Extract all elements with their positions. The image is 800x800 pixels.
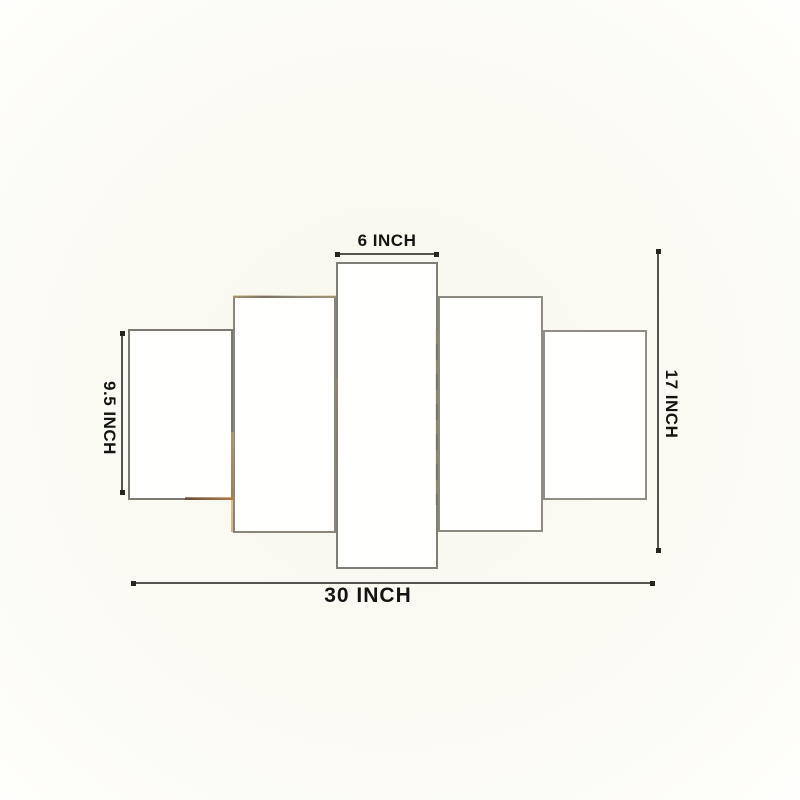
bottom-width-label: 30 INCH: [324, 584, 412, 608]
right-height-label: 17 INCH: [661, 370, 681, 439]
top-width-dimension-line: [337, 253, 437, 255]
left-height-label: 9.5 INCH: [99, 381, 119, 455]
top-width-label: 6 INCH: [358, 231, 417, 251]
canvas-panel-rightmost: [543, 330, 647, 500]
panel-size-diagram: 6 INCH 30 INCH 9.5 INCH 17 INCH: [0, 0, 800, 800]
canvas-panel-left-middle: [233, 296, 336, 533]
left-height-dimension-line: [121, 333, 123, 493]
canvas-panel-right-middle: [438, 296, 543, 532]
canvas-panel-leftmost: [128, 329, 233, 500]
canvas-panel-center: [336, 262, 438, 569]
right-height-dimension-line: [657, 251, 659, 551]
